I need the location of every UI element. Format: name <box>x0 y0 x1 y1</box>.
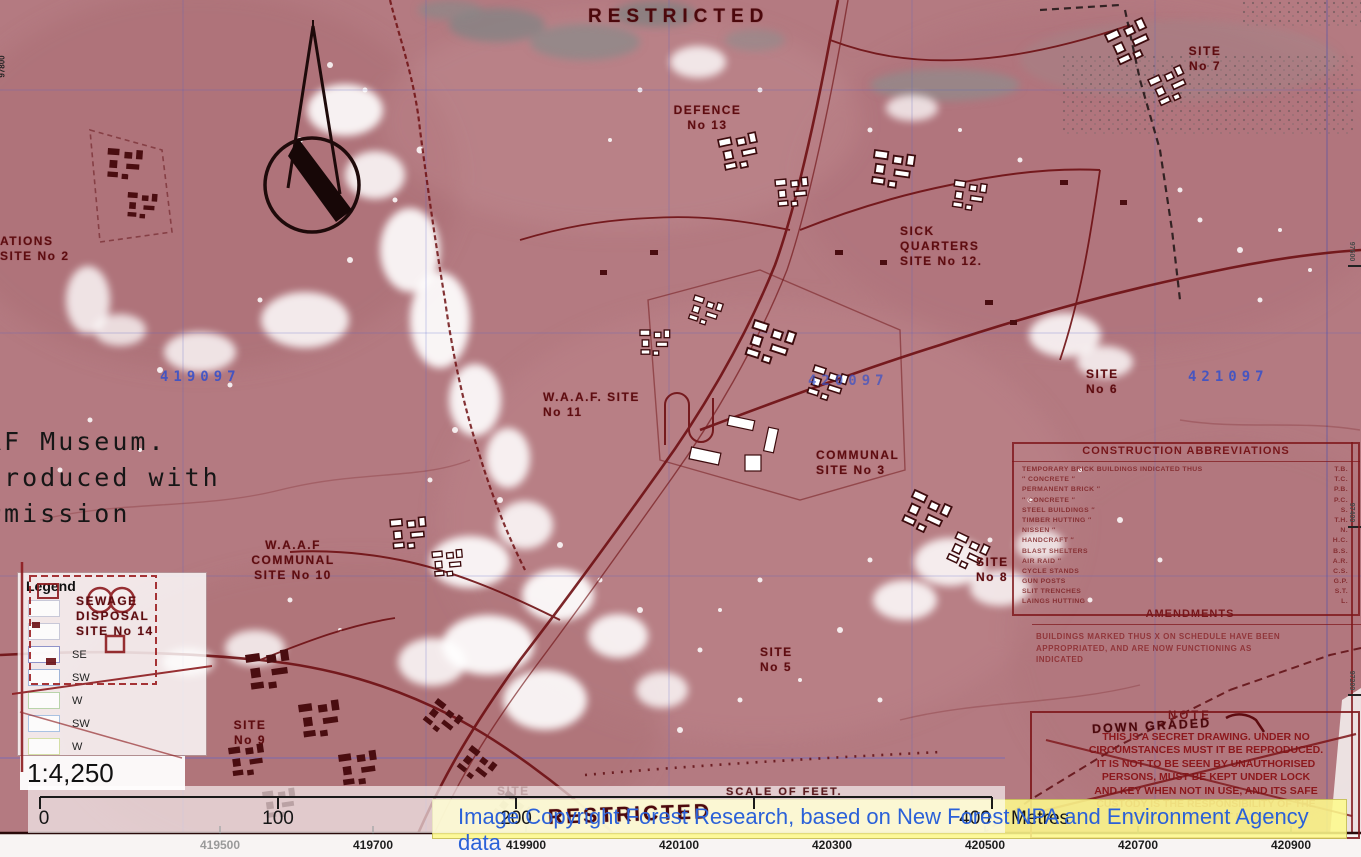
restricted-stamp-top: RESTRICTED <box>588 6 769 28</box>
construction-box-rows: TEMPORARY BRICK BUILDINGS INDICATED THUS… <box>1022 466 1348 609</box>
site-label-site5: SITENo 5 <box>760 645 793 675</box>
site-label-defence: DEFENCENo 13 <box>660 103 755 133</box>
construction-box-title: CONSTRUCTION ABBREVIATIONS <box>1040 445 1332 457</box>
edge-northing-label: 97200 <box>1348 671 1355 690</box>
edge-northing-label: 97600 <box>1348 242 1355 261</box>
scalebar-tick-label: 0 <box>39 808 50 830</box>
north-arrow-icon <box>260 20 380 250</box>
grid-easting-label: 420097 <box>808 373 889 389</box>
site-label-site7: SITENo 7 <box>1178 44 1232 74</box>
attribution-text: Image Copyright Forest Research, based o… <box>458 804 1348 856</box>
edge-northing-label: 97800 <box>0 55 7 77</box>
site-label-communal3: COMMUNALSITE No 3 <box>816 448 899 478</box>
map-canvas[interactable]: RESTRICTED ATIONSSITE No 2 DEFENCENo 13 … <box>0 0 1361 857</box>
bottom-easting-label: 419500 <box>200 838 240 852</box>
site-label-site6: SITENo 6 <box>1086 367 1119 397</box>
site-label-waaf11: W.A.A.F. SITENo 11 <box>543 390 640 420</box>
site-label-sick-quarters: SICKQUARTERSSITE No 12. <box>900 224 983 269</box>
site-label-sewage14: SEWAGEDISPOSALSITE No 14 <box>76 594 154 639</box>
edge-northing-label: 97400 <box>1348 503 1355 522</box>
museum-permission-text: AF Museum. produced with rmission <box>0 424 221 532</box>
construction-box-divider <box>1012 461 1360 462</box>
amendments-box-title: AMENDMENTS <box>1140 608 1240 620</box>
amendments-box-divider <box>1032 624 1361 625</box>
site-label-waaf10: W.A.A.FCOMMUNALSITE No 10 <box>250 538 336 583</box>
site-label-rations: ATIONSSITE No 2 <box>0 234 70 264</box>
bottom-easting-label: 419700 <box>353 838 393 852</box>
grid-easting-label: 421097 <box>1188 369 1269 385</box>
site-label-site8: SITENo 8 <box>976 555 1009 585</box>
grid-easting-label: 419097 <box>160 369 241 385</box>
scalebar-tick-label: 100 <box>262 808 294 830</box>
amendments-box-text: BUILDINGS MARKED THUS X ON SCHEDULE HAVE… <box>1036 631 1354 666</box>
site-label-site9: SITENo 9 <box>226 718 274 748</box>
